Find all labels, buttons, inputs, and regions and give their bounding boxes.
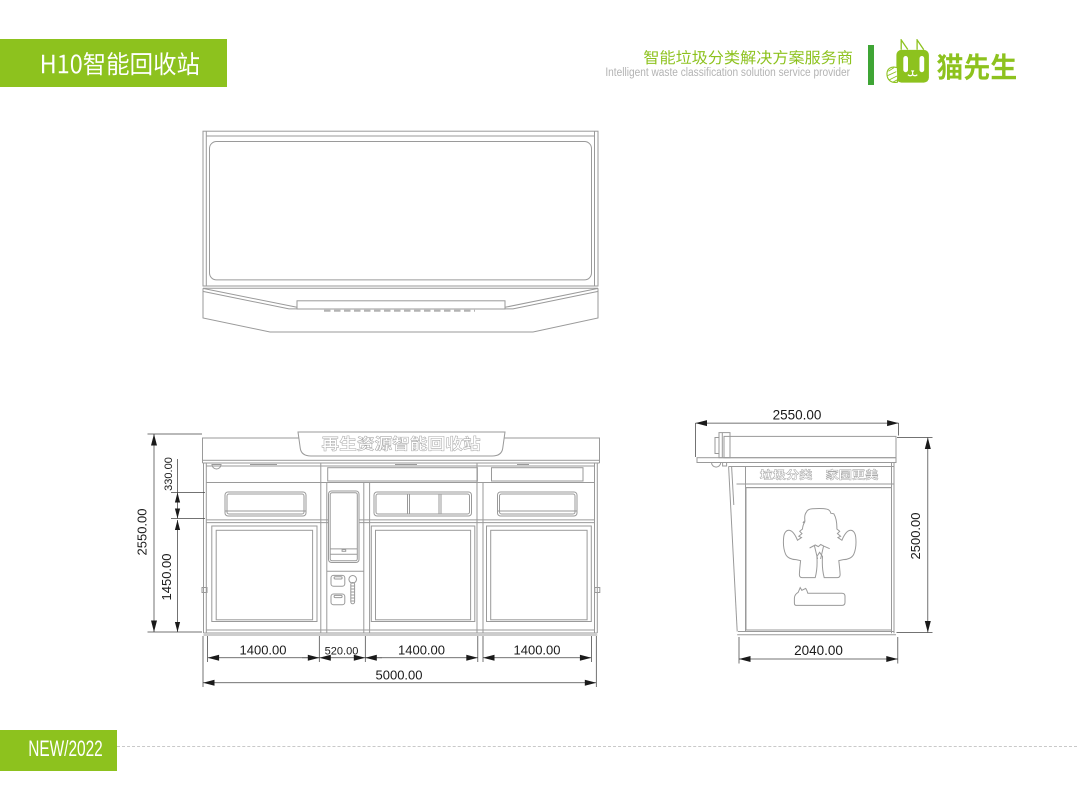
svg-text:330.00: 330.00 (163, 457, 175, 491)
svg-text:1400.00: 1400.00 (398, 643, 445, 658)
svg-text:1450.00: 1450.00 (159, 554, 174, 601)
svg-text:2500.00: 2500.00 (908, 513, 923, 560)
svg-text:2550.00: 2550.00 (773, 408, 822, 423)
svg-text:5000.00: 5000.00 (376, 668, 423, 683)
svg-text:2040.00: 2040.00 (794, 643, 843, 658)
svg-text:520.00: 520.00 (325, 646, 359, 658)
svg-text:1400.00: 1400.00 (240, 643, 287, 658)
svg-text:1400.00: 1400.00 (514, 643, 561, 658)
svg-text:2550.00: 2550.00 (135, 509, 150, 556)
